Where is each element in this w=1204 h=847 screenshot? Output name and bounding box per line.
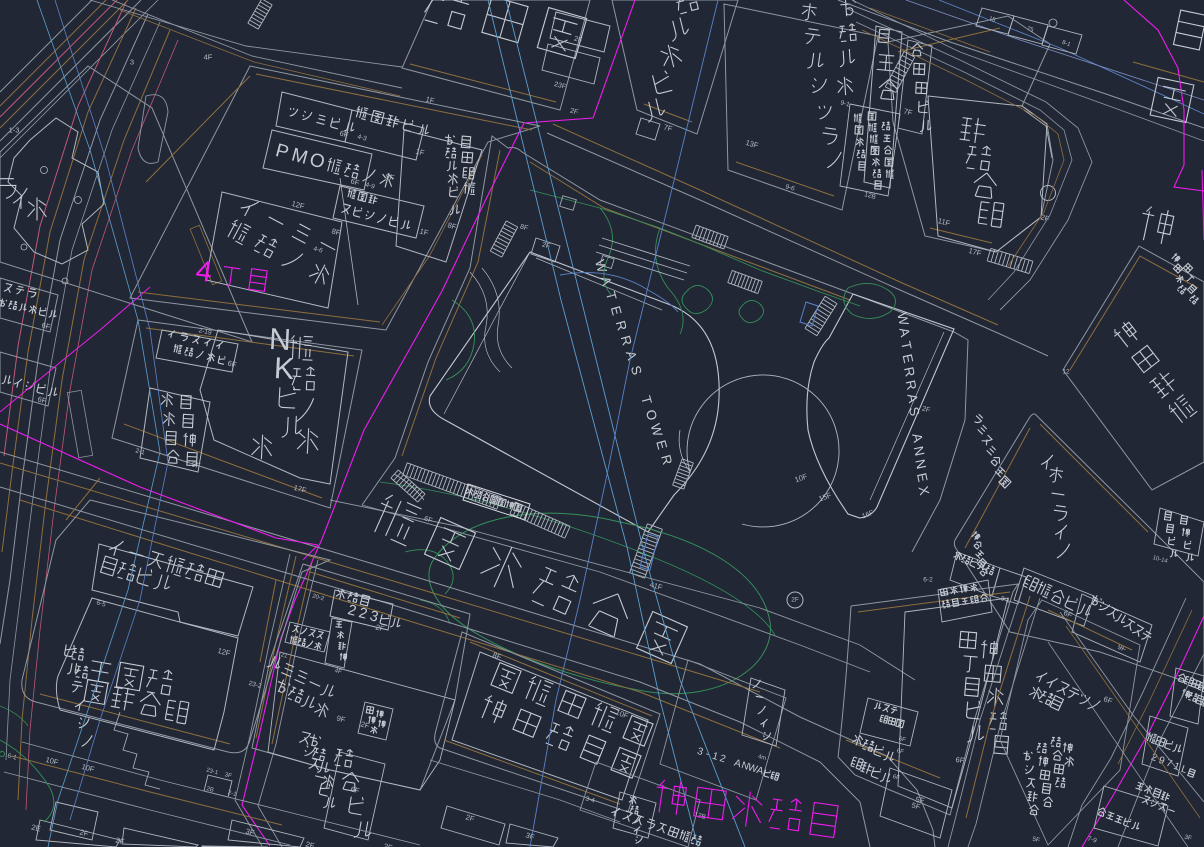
svg-text:1-3: 1-3 bbox=[9, 126, 20, 135]
svg-text:12: 12 bbox=[1062, 369, 1070, 376]
svg-text:2F: 2F bbox=[305, 840, 316, 847]
svg-text:3: 3 bbox=[130, 58, 134, 67]
svg-text:2F: 2F bbox=[791, 597, 799, 604]
svg-text:K: K bbox=[273, 352, 295, 386]
svg-text:6-2: 6-2 bbox=[923, 577, 933, 584]
svg-text:4F: 4F bbox=[204, 53, 213, 62]
